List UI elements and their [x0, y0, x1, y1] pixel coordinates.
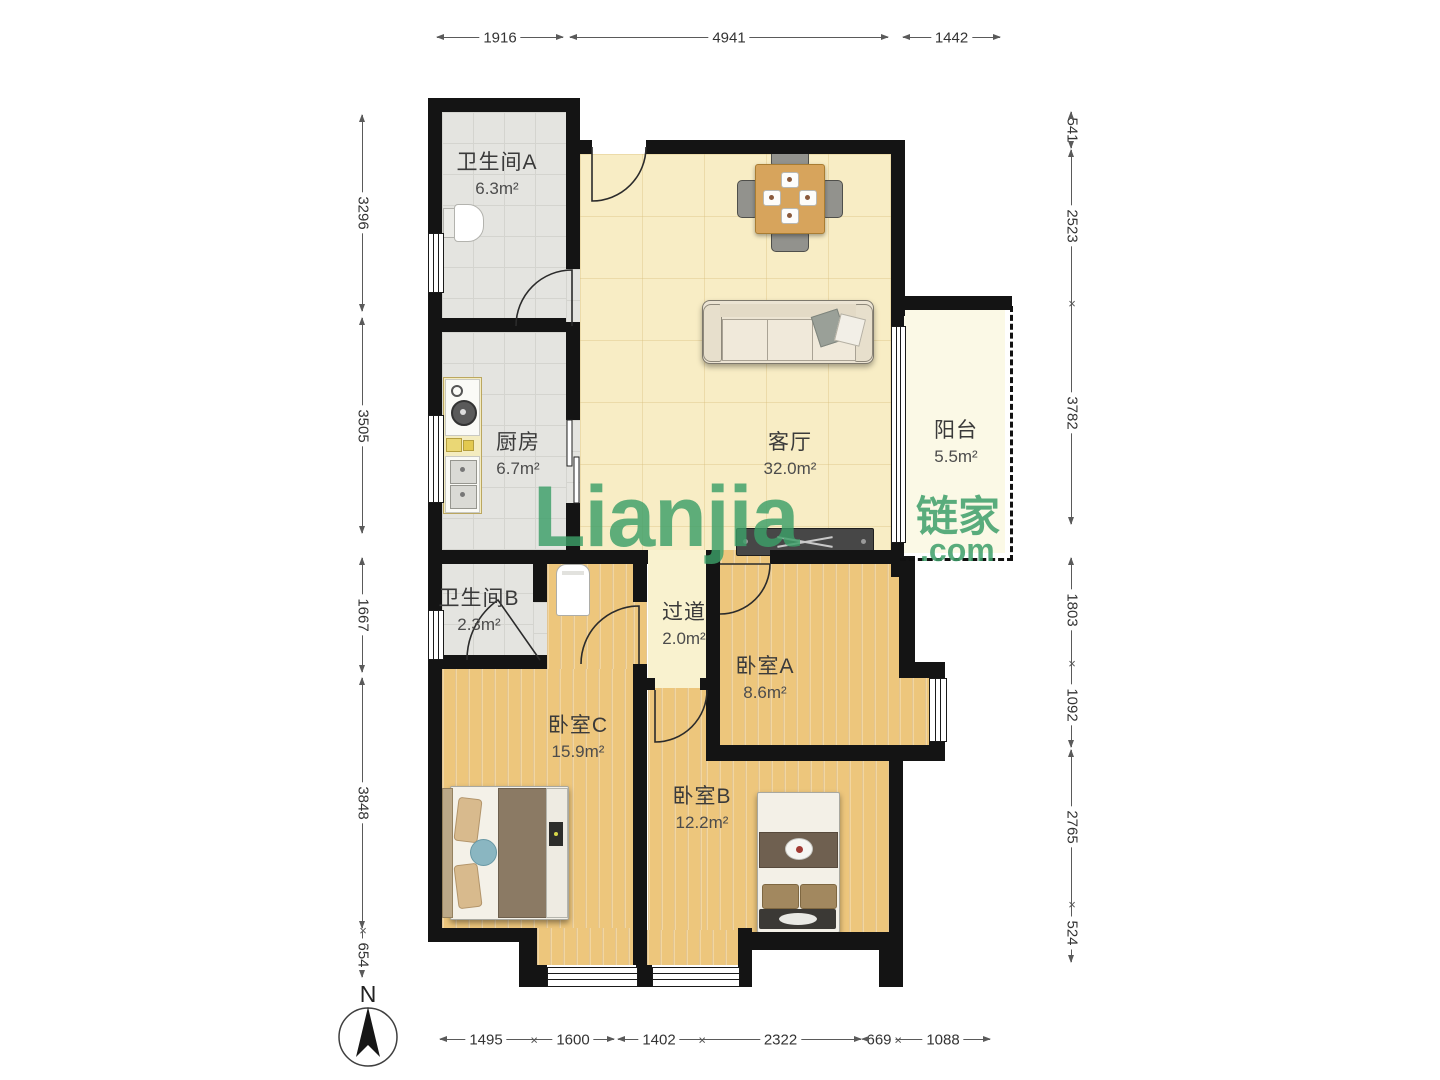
arrowhead-icon [436, 34, 444, 40]
room-label-2: 厨房6.7m² [496, 426, 540, 479]
dimension-value: 2765 [1064, 806, 1081, 847]
window [428, 233, 444, 293]
washing-machine-icon [556, 564, 590, 616]
dimension-value: 1600 [552, 1032, 593, 1049]
plate-icon [781, 208, 799, 224]
kitchen-counter [443, 377, 482, 514]
bed-double [442, 786, 568, 918]
wall [428, 318, 566, 332]
wall [533, 562, 547, 602]
window [428, 415, 444, 503]
plate-icon [799, 190, 817, 206]
arrowhead-icon [1068, 557, 1074, 565]
room-name: 客厅 [764, 426, 817, 456]
wall [566, 334, 580, 420]
arrowhead-icon [607, 1036, 615, 1042]
dimension-value: 1667 [355, 594, 372, 635]
dimension-value: 1088 [922, 1032, 963, 1049]
arrowhead-icon [359, 677, 365, 685]
dimension-value: 1092 [1064, 684, 1081, 725]
bathroom-b-door-gap [533, 602, 547, 655]
wall [428, 928, 533, 942]
lianjia-watermark-latin: Lianjia [533, 474, 798, 560]
dimension-left: 1667 [355, 558, 371, 672]
room-label-8: 卧室C15.9m² [548, 709, 608, 762]
round-pillow [470, 839, 497, 866]
dimension-right: 1092 [1064, 662, 1080, 747]
room-area: 12.2m² [672, 813, 731, 833]
arrowhead-icon [1068, 517, 1074, 525]
dimension-left: 3848 [355, 678, 371, 928]
dimension-top: 1442 [903, 30, 1000, 46]
headboard [759, 909, 836, 929]
pillow [762, 884, 799, 909]
window [652, 967, 740, 987]
dimension-value: 4941 [708, 30, 749, 47]
compass-north-label: N [360, 981, 377, 1008]
wall [706, 550, 720, 750]
room-name: 卧室A [735, 650, 794, 680]
room-label-9: 卧室B12.2m² [672, 780, 731, 833]
tv-on-bench [549, 822, 563, 846]
wall [700, 678, 715, 690]
dimension-value: 1402 [638, 1032, 679, 1049]
arrowhead-icon [359, 526, 365, 534]
arrowhead-icon [1068, 141, 1074, 149]
arrowhead-icon [439, 1036, 447, 1042]
dimension-left: 3296 [355, 115, 371, 311]
window [929, 678, 947, 742]
bedroom-a-bay-floor [899, 678, 929, 745]
wall [706, 745, 945, 761]
room-name: 阳台 [934, 414, 978, 444]
sofa [702, 300, 874, 364]
pillow [453, 863, 482, 910]
dish [785, 838, 813, 860]
balcony-window [891, 326, 906, 543]
room-label-4: 阳台5.5m² [934, 414, 978, 467]
wall [889, 745, 903, 950]
wall [646, 140, 905, 154]
room-label-6: 过道2.0m² [662, 596, 706, 649]
room-name: 卫生间A [456, 146, 537, 176]
room-area: 32.0m² [764, 459, 817, 479]
arrowhead-icon [993, 34, 1001, 40]
bedroom-b-floor-bottom [647, 930, 738, 965]
arrowhead-icon [902, 34, 910, 40]
dimension-right: 3782 [1064, 302, 1080, 524]
dimension-value: 3505 [355, 405, 372, 446]
dimension-value: 3296 [355, 192, 372, 233]
arrowhead-icon [359, 557, 365, 565]
room-area: 2.3m² [438, 615, 519, 635]
wall [636, 965, 652, 987]
dimension-value: 1916 [479, 30, 520, 47]
toilet-icon [443, 204, 483, 240]
dimension-right: 2765× [1064, 750, 1080, 903]
room-label-3: 客厅32.0m² [764, 426, 817, 479]
room-name: 卧室B [672, 780, 731, 810]
room-area: 6.3m² [456, 179, 537, 199]
window [547, 967, 638, 987]
arrowhead-icon [1068, 740, 1074, 748]
room-area: 5.5m² [934, 447, 978, 467]
compass-icon [339, 1007, 397, 1066]
bedroom-c-door-gap [633, 602, 647, 664]
dimension-left: 3505 [355, 318, 371, 533]
dimension-top: 4941 [570, 30, 888, 46]
wall [899, 662, 945, 678]
floor-plan: N Lianjia 链家 .com 卫生间A6.3m²厨房6.7m²客厅32.0… [0, 0, 1440, 1080]
room-label-7: 卧室A8.6m² [735, 650, 794, 703]
wall [519, 965, 547, 987]
dimension-value: 3848 [355, 782, 372, 823]
stove-icon [445, 379, 480, 436]
arrowhead-icon [359, 114, 365, 122]
room-name: 过道 [662, 596, 706, 626]
bed-bench [546, 788, 568, 918]
dimension-value: 1442 [931, 30, 972, 47]
room-label-5: 卫生间B2.3m² [438, 582, 519, 635]
dimension-value: 3782 [1064, 392, 1081, 433]
dimension-value: 2523 [1064, 205, 1081, 246]
pillow [800, 884, 837, 909]
bed-single [757, 792, 840, 933]
wall [879, 948, 903, 987]
bathroom-a-door-gap [566, 269, 580, 322]
room-area: 8.6m² [735, 683, 794, 703]
wall [428, 98, 580, 112]
arrowhead-icon [881, 34, 889, 40]
dimension-value: 654 [355, 938, 372, 971]
arrowhead-icon [359, 304, 365, 312]
dimension-right: 2523× [1064, 150, 1080, 302]
dimension-value: 1803 [1064, 589, 1081, 630]
dimension-value: 524 [1064, 916, 1081, 949]
wall [899, 556, 915, 666]
blanket [498, 788, 548, 918]
arrowhead-icon [359, 970, 365, 978]
headboard [442, 788, 453, 918]
room-area: 15.9m² [548, 742, 608, 762]
room-name: 卫生间B [438, 582, 519, 612]
dimension-bottom: 1495× [440, 1032, 532, 1048]
dimension-bottom: 2322 [700, 1032, 861, 1048]
dimension-left: 654× [355, 932, 371, 977]
arrowhead-icon [861, 1036, 869, 1042]
dimension-value: 2322 [760, 1032, 801, 1049]
dimension-bottom: 669× [862, 1032, 896, 1048]
room-label-1: 卫生间A6.3m² [456, 146, 537, 199]
dimension-value: 1495 [465, 1032, 506, 1049]
room-name: 卧室C [548, 709, 608, 739]
dimension-junction: × [359, 923, 367, 938]
wall [633, 562, 647, 602]
wall [566, 322, 580, 334]
wall [566, 112, 580, 269]
wall [428, 655, 547, 669]
dimension-bottom: 1402× [618, 1032, 700, 1048]
room-area: 6.7m² [496, 459, 540, 479]
dimension-bottom: 1088 [896, 1032, 990, 1048]
wall [633, 664, 647, 965]
wall [428, 98, 442, 942]
arrowhead-icon [1068, 749, 1074, 757]
arrowhead-icon [1068, 955, 1074, 963]
dimension-right: 1803× [1064, 558, 1080, 662]
sink-icon [445, 456, 480, 513]
room-area: 2.0m² [662, 629, 706, 649]
dimension-right: 524 [1064, 903, 1080, 962]
plate-icon [763, 190, 781, 206]
wall [891, 140, 905, 316]
arrowhead-icon [359, 665, 365, 673]
dimension-right: 541 [1064, 112, 1080, 148]
room-name: 厨房 [496, 426, 540, 456]
arrowhead-icon [983, 1036, 991, 1042]
wall [738, 928, 752, 987]
arrowhead-icon [1068, 111, 1074, 119]
dimension-top: 1916 [437, 30, 563, 46]
dimension-bottom: 1600 [532, 1032, 614, 1048]
arrowhead-icon [556, 34, 564, 40]
dining-set [735, 144, 841, 252]
wall [645, 678, 655, 690]
arrowhead-icon [617, 1036, 625, 1042]
arrowhead-icon [359, 317, 365, 325]
arrowhead-icon [569, 34, 577, 40]
bedroom-c-floor-bottom [537, 928, 633, 965]
lianjia-watermark-com: .com [920, 534, 995, 566]
plate-icon [781, 172, 799, 188]
arrowhead-icon [1068, 149, 1074, 157]
